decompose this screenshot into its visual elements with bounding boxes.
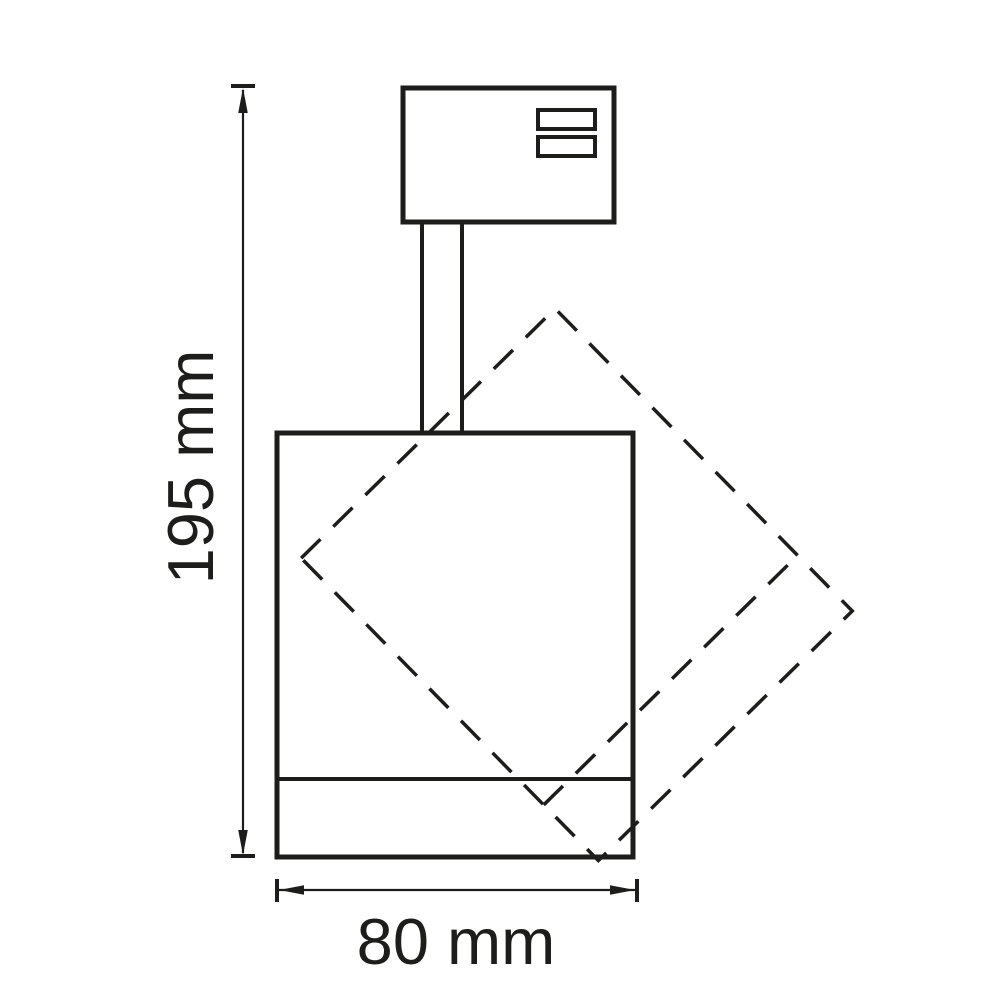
width-dim-arrow-right: [610, 885, 635, 895]
lamp-body: [277, 433, 633, 857]
height-dimension: 195 mm: [154, 86, 255, 856]
height-dim-arrow-up: [238, 88, 248, 113]
height-dimension-label: 195 mm: [154, 350, 227, 585]
dimension-drawing: 195 mm 80 mm: [0, 0, 1000, 1000]
drawing-canvas: 195 mm 80 mm: [0, 0, 1000, 1000]
rotated-trim-line: [544, 555, 798, 805]
width-dim-arrow-left: [279, 885, 304, 895]
width-dimension-label: 80 mm: [357, 905, 556, 978]
height-dim-arrow-down: [238, 830, 248, 855]
width-dimension: 80 mm: [277, 879, 637, 978]
